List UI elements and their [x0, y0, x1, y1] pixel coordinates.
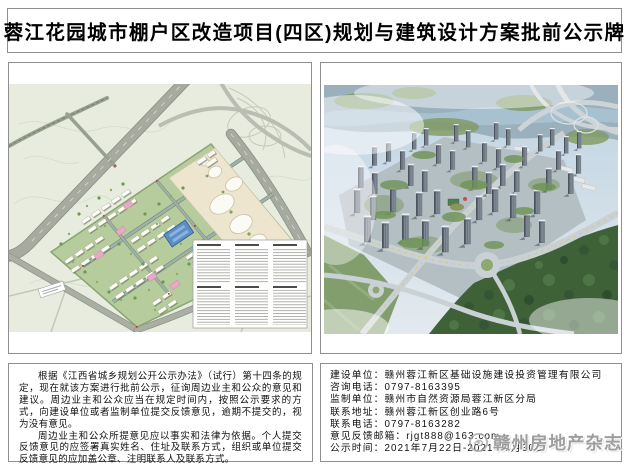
aerial-rendering-panel: [320, 62, 622, 354]
site-plan-panel: [8, 62, 312, 354]
magazine-logo-icon: [468, 432, 489, 453]
plan-indicator-table: [193, 240, 307, 328]
construction-unit-line: 建设单位：赣州蓉江新区基础设施建设投资管理有限公司: [330, 370, 612, 382]
notice-paragraph-1: 根据《江西省城乡规划公开公示办法》（试行）第十四条的规定，现在就该方案进行批前公…: [19, 371, 302, 431]
notice-text-box: 根据《江西省城乡规划公开公示办法》（试行）第十四条的规定，现在就该方案进行批前公…: [8, 363, 313, 462]
aerial-rendering-image: [324, 85, 618, 334]
site-plan-image: [9, 84, 311, 332]
watermark-text: 赣州房地产杂志: [493, 430, 623, 455]
watermark: 赣州房地产杂志: [468, 430, 623, 455]
consult-phone-line: 咨询电话：0797-8163395: [330, 382, 612, 394]
notice-paragraph-2: 周边业主和公众所提意见应以事实和法律为依据。个人提交反馈意见的应签署真实姓名、住…: [19, 431, 302, 467]
supervision-unit-line: 监制单位：赣州市自然资源局蓉江新区分局: [330, 394, 612, 406]
contact-address-line: 联系地址：赣州蓉江新区创业路6号: [330, 407, 612, 419]
title-box: 蓉江花园城市棚户区改造项目(四区)规划与建筑设计方案批前公示牌: [7, 8, 622, 53]
notice-board: 蓉江花园城市棚户区改造项目(四区)规划与建筑设计方案批前公示牌: [0, 0, 629, 470]
page-title: 蓉江花园城市棚户区改造项目(四区)规划与建筑设计方案批前公示牌: [4, 16, 626, 45]
